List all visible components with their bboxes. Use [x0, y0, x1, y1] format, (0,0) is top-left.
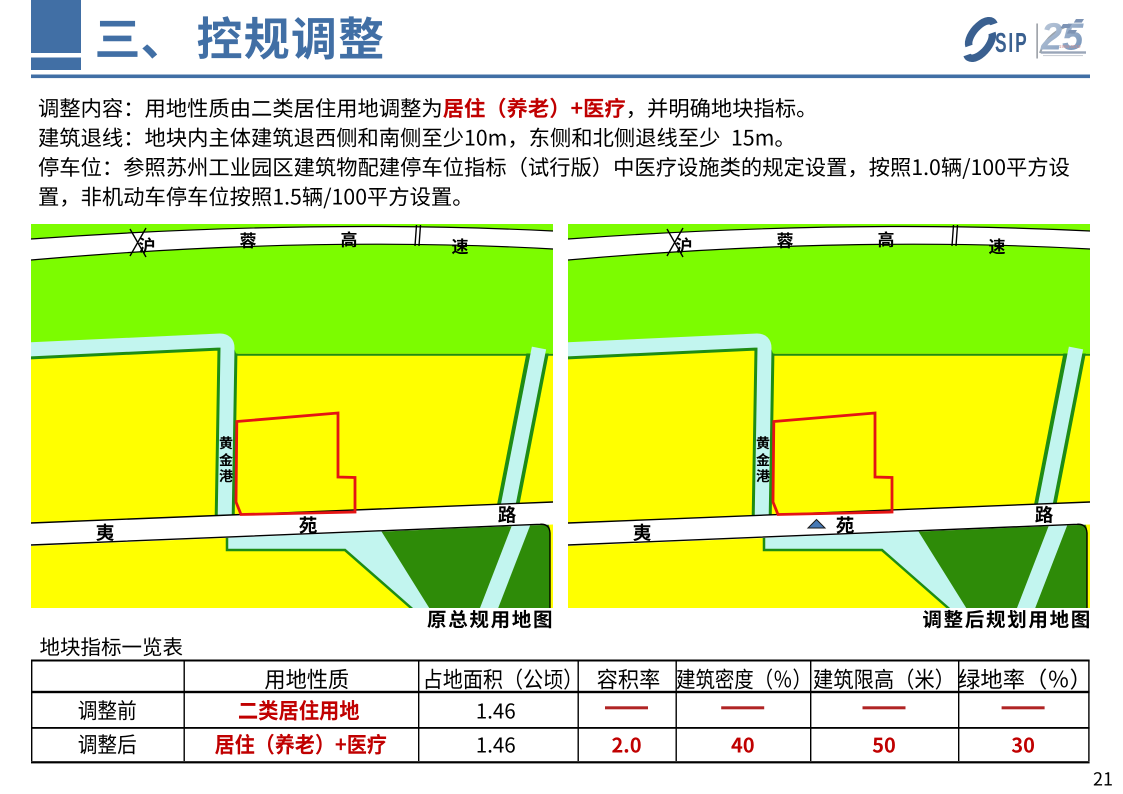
svg-text:SIP: SIP [995, 27, 1029, 58]
svg-text:1994-2019: 1994-2019 [1059, 44, 1081, 49]
